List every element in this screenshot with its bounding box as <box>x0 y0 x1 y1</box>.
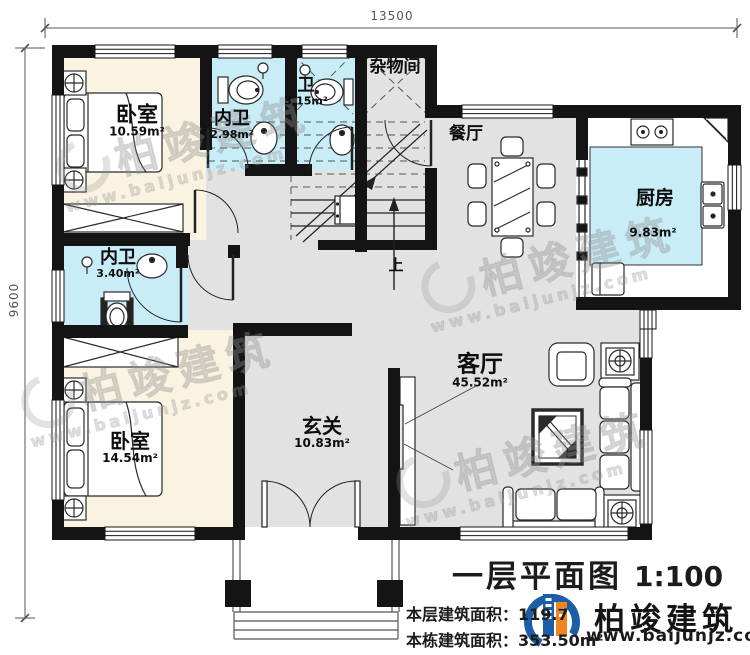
sofa-icon <box>599 378 644 491</box>
armchair-icon <box>549 343 594 386</box>
dining-table-icon <box>492 158 533 236</box>
sink-icon <box>137 254 167 278</box>
porch <box>225 540 403 639</box>
window <box>52 95 64 185</box>
window <box>95 45 175 58</box>
room-label-bath-inner-2: 内卫 3.40m² <box>96 249 139 279</box>
dimension-label-left: 9600 <box>7 283 21 318</box>
room-label-dining: 餐厅 <box>449 126 483 144</box>
room-label-kitchen: 厨房 <box>636 189 674 209</box>
room-label-bedroom-2: 卧室 14.54m² <box>102 431 158 465</box>
nightstand-icon <box>62 378 86 402</box>
window <box>460 527 628 540</box>
floor-plan-drawing <box>0 0 750 655</box>
floor-plan-canvas: 13500 9600 卧室 10.59m² 内卫 2.98m² 卫 3.15m²… <box>0 0 750 655</box>
plan-scale: 1:100 <box>634 560 723 593</box>
chair-icon <box>468 164 486 188</box>
sink-icon <box>251 122 277 154</box>
room-label-living: 客厅 45.52m² <box>452 353 508 390</box>
room-area-kitchen: 9.83m² <box>629 227 676 240</box>
window <box>462 105 553 118</box>
fridge-icon <box>592 263 624 295</box>
wardrobe-icon <box>63 337 178 367</box>
stove-icon <box>631 119 673 145</box>
side-table-icon <box>603 495 641 532</box>
flue-vent <box>640 310 656 329</box>
stairs-up-label: 上 <box>388 258 403 274</box>
kitchen-sink-icon <box>701 182 724 228</box>
chair-icon <box>537 164 555 188</box>
window <box>52 400 64 500</box>
company-logo-website: www.baijunjz.com <box>586 626 750 646</box>
chair-icon <box>501 137 523 156</box>
toilet-icon <box>218 76 263 104</box>
side-table-icon <box>601 343 639 380</box>
window <box>640 430 652 524</box>
floor-area-line: 本层建筑面积：119.7 <box>406 601 569 625</box>
coffee-table-icon <box>533 410 582 464</box>
nightstand-icon <box>62 496 86 520</box>
sofa-icon <box>503 487 604 533</box>
window <box>52 270 64 322</box>
room-label-bath-inner-1: 内卫 2.98m² <box>210 110 253 140</box>
room-label-bath: 卫 3.15m² <box>284 77 327 106</box>
sink-icon <box>330 125 354 155</box>
room-label-bedroom-1: 卧室 10.59m² <box>109 104 165 139</box>
room-label-foyer: 玄关 10.83m² <box>294 416 350 450</box>
entry-steps <box>234 612 398 639</box>
nightstand-icon <box>62 71 86 95</box>
dimension-label-top: 13500 <box>370 9 413 23</box>
window <box>728 165 741 210</box>
window <box>218 45 272 58</box>
porch-column <box>225 580 251 607</box>
chair-icon <box>501 238 523 257</box>
chair-icon <box>468 202 486 226</box>
room-label-storage: 杂物间 <box>370 59 421 77</box>
building-area-line: 本栋建筑面积：353.50m² <box>406 627 603 651</box>
porch-column <box>377 580 403 607</box>
window <box>105 527 195 540</box>
chair-icon <box>537 202 555 226</box>
wardrobe-icon <box>63 204 183 232</box>
nightstand-icon <box>62 168 86 192</box>
window <box>302 45 347 58</box>
toilet-icon <box>101 292 133 329</box>
